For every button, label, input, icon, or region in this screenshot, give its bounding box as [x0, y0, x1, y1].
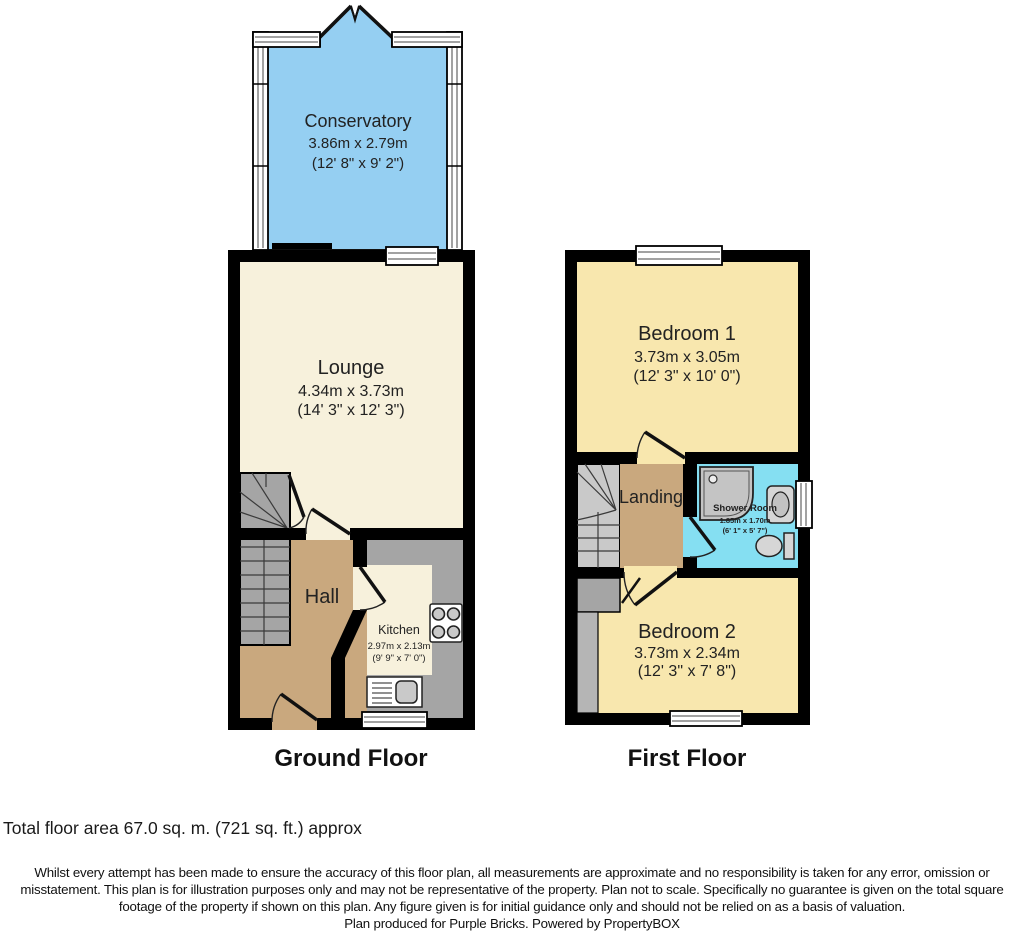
- staircase-ground: [240, 473, 290, 645]
- window: [253, 32, 268, 250]
- window: [796, 481, 812, 528]
- window: [392, 32, 462, 47]
- room-label: Bedroom 1: [638, 323, 736, 345]
- landing-room: [620, 464, 683, 568]
- room-dims: (12' 3" x 7' 8"): [638, 663, 736, 680]
- room-dims: 4.34m x 3.73m: [298, 383, 404, 400]
- sliding-door: [272, 243, 332, 249]
- wall-hall-kitchen: [353, 540, 367, 567]
- room-label: Kitchen: [378, 623, 420, 637]
- floorplan-page: Conservatory 3.86m x 2.79m (12' 8" x 9' …: [0, 0, 1024, 936]
- hob: [430, 604, 462, 642]
- window: [362, 712, 427, 728]
- room-dims: (9' 9" x 7' 0"): [372, 653, 425, 664]
- ground-block: [228, 247, 475, 730]
- wall-lounge-hall: [228, 528, 306, 540]
- room-dims: 3.73m x 2.34m: [634, 645, 740, 662]
- toilet: [756, 533, 794, 559]
- window: [386, 247, 438, 265]
- front-door-opening: [272, 718, 317, 730]
- room-dims: (12' 8" x 9' 2"): [312, 155, 404, 172]
- room-label: Lounge: [318, 357, 385, 379]
- disclaimer-text: Whilst every attempt has been made to en…: [6, 864, 1018, 915]
- first-floor-plan: Bedroom 1 3.73m x 3.05m (12' 3" x 10' 0"…: [565, 246, 812, 772]
- room-dims: (14' 3" x 12' 3"): [297, 402, 404, 419]
- window: [670, 711, 742, 726]
- floor-plan-canvas: Conservatory 3.86m x 2.79m (12' 8" x 9' …: [0, 0, 1024, 790]
- window: [636, 246, 722, 265]
- room-label: Bedroom 2: [638, 621, 736, 643]
- disclaimer-block: Whilst every attempt has been made to en…: [6, 864, 1018, 932]
- room-dims: (6' 1" x 5' 7"): [723, 526, 768, 535]
- total-floor-area: Total floor area 67.0 sq. m. (721 sq. ft…: [3, 818, 362, 839]
- room-label: Shower Room: [713, 503, 777, 514]
- room-dims: (12' 3" x 10' 0"): [633, 368, 740, 385]
- room-label: Landing: [619, 487, 683, 507]
- room-dims: 3.73m x 3.05m: [634, 349, 740, 366]
- bedroom2-recess: [577, 612, 598, 713]
- ground-floor-plan: Conservatory 3.86m x 2.79m (12' 8" x 9' …: [228, 6, 475, 772]
- room-label: Conservatory: [304, 111, 411, 131]
- understairs-closet: [577, 578, 620, 612]
- kitchen-sink: [367, 677, 422, 707]
- window: [447, 32, 462, 250]
- ground-floor-label: Ground Floor: [274, 745, 427, 772]
- room-label: Hall: [305, 586, 339, 608]
- room-dims: 2.97m x 2.13m: [368, 641, 431, 652]
- produced-by-text: Plan produced for Purple Bricks. Powered…: [6, 915, 1018, 932]
- wall-hall-kitchen-lower: [331, 658, 345, 718]
- window: [253, 32, 320, 47]
- room-dims: 3.86m x 2.79m: [308, 135, 407, 152]
- room-dims: 1.85m x 1.70m: [720, 516, 771, 525]
- first-floor-label: First Floor: [628, 745, 747, 772]
